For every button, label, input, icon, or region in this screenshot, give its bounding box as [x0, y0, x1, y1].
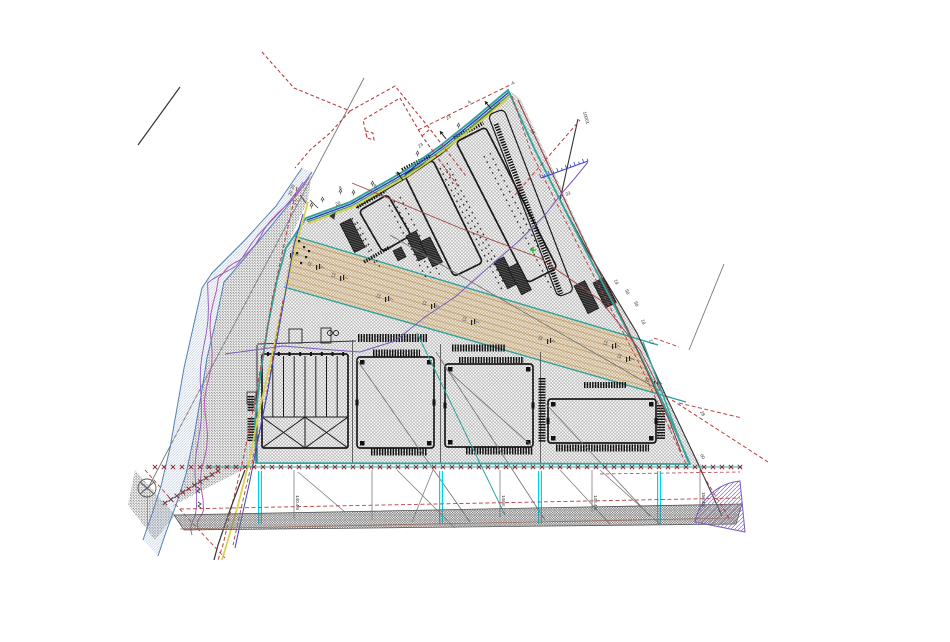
svg-text:148.4m: 148.4m	[593, 495, 598, 510]
svg-text:146m: 146m	[501, 495, 506, 507]
svg-text:150.4m: 150.4m	[701, 492, 706, 507]
svg-text:140.4m: 140.4m	[295, 495, 300, 510]
